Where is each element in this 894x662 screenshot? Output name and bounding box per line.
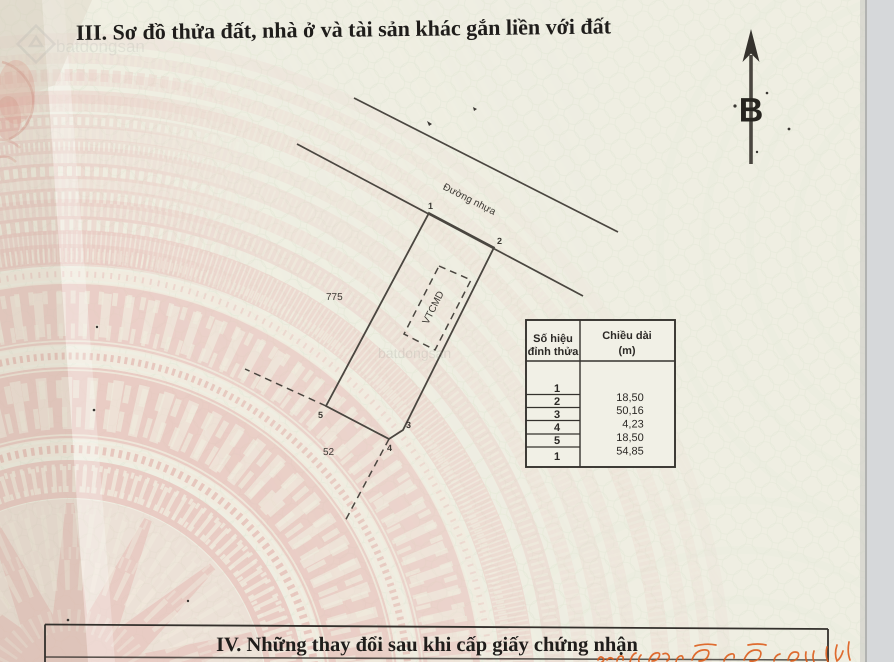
svg-text:đỉnh thửa: đỉnh thửa xyxy=(528,346,580,358)
svg-text:54,85: 54,85 xyxy=(616,446,644,458)
svg-text:batdongsan: batdongsan xyxy=(378,345,451,361)
svg-text:Chiều dài: Chiều dài xyxy=(602,330,652,342)
svg-text:50,16: 50,16 xyxy=(616,405,644,417)
svg-text:batdongsan: batdongsan xyxy=(56,37,145,56)
svg-text:4,23: 4,23 xyxy=(622,419,643,431)
svg-text:IV. Những thay đổi sau khi cấp: IV. Những thay đổi sau khi cấp giấy chứn… xyxy=(216,634,638,656)
svg-text:18,50: 18,50 xyxy=(616,432,644,444)
svg-text:4: 4 xyxy=(554,422,561,434)
svg-text:4: 4 xyxy=(387,443,392,453)
svg-text:1: 1 xyxy=(554,451,560,463)
svg-text:5: 5 xyxy=(318,410,323,420)
svg-text:52: 52 xyxy=(323,447,335,458)
svg-text:18,50: 18,50 xyxy=(616,392,644,404)
svg-text:Số hiệu: Số hiệu xyxy=(533,333,573,345)
svg-text:B: B xyxy=(739,92,764,130)
svg-text:2: 2 xyxy=(554,396,560,408)
svg-text:1: 1 xyxy=(428,201,433,211)
svg-text:3: 3 xyxy=(554,409,560,421)
svg-text:3: 3 xyxy=(406,420,411,430)
svg-text:5: 5 xyxy=(554,435,560,447)
svg-text:(m): (m) xyxy=(618,345,635,357)
svg-text:2: 2 xyxy=(497,236,502,246)
svg-text:775: 775 xyxy=(326,292,343,303)
svg-text:1: 1 xyxy=(554,383,560,395)
